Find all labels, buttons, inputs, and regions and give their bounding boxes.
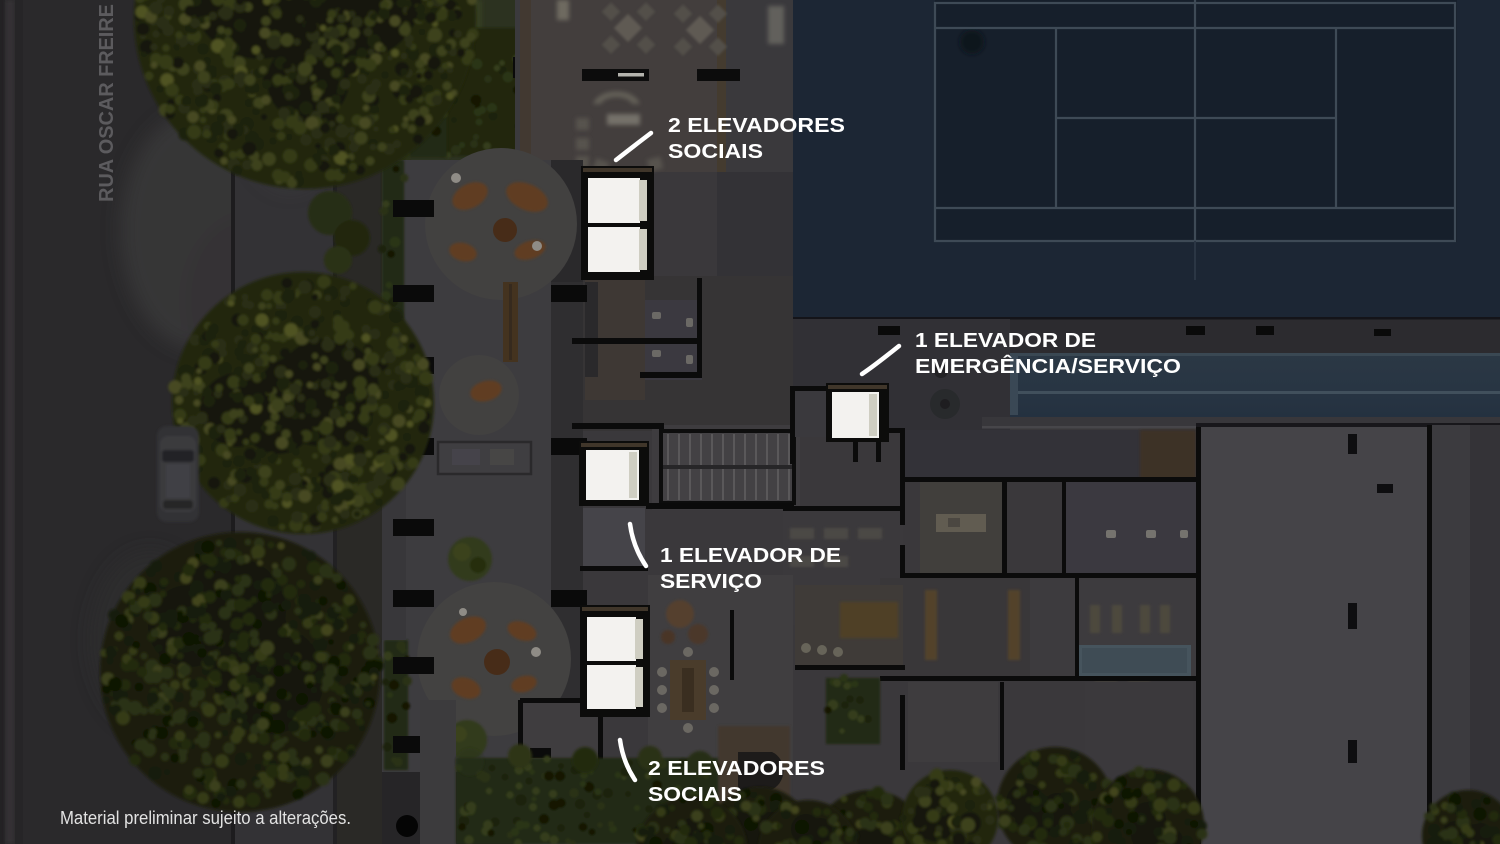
svg-text:RUA OSCAR FREIRE: RUA OSCAR FREIRE bbox=[96, 2, 118, 202]
svg-text:1 ELEVADOR DE: 1 ELEVADOR DE bbox=[915, 329, 1096, 352]
svg-text:SERVIÇO: SERVIÇO bbox=[660, 570, 762, 593]
svg-text:SOCIAIS: SOCIAIS bbox=[648, 783, 742, 806]
svg-text:2 ELEVADORES: 2 ELEVADORES bbox=[668, 114, 845, 137]
svg-text:1 ELEVADOR DE: 1 ELEVADOR DE bbox=[660, 544, 841, 567]
svg-text:SOCIAIS: SOCIAIS bbox=[668, 140, 763, 163]
svg-text:2 ELEVADORES: 2 ELEVADORES bbox=[648, 757, 825, 780]
svg-text:Material preliminar sujeito a: Material preliminar sujeito a alterações… bbox=[60, 808, 351, 828]
svg-text:EMERGÊNCIA/SERVIÇO: EMERGÊNCIA/SERVIÇO bbox=[915, 354, 1181, 378]
